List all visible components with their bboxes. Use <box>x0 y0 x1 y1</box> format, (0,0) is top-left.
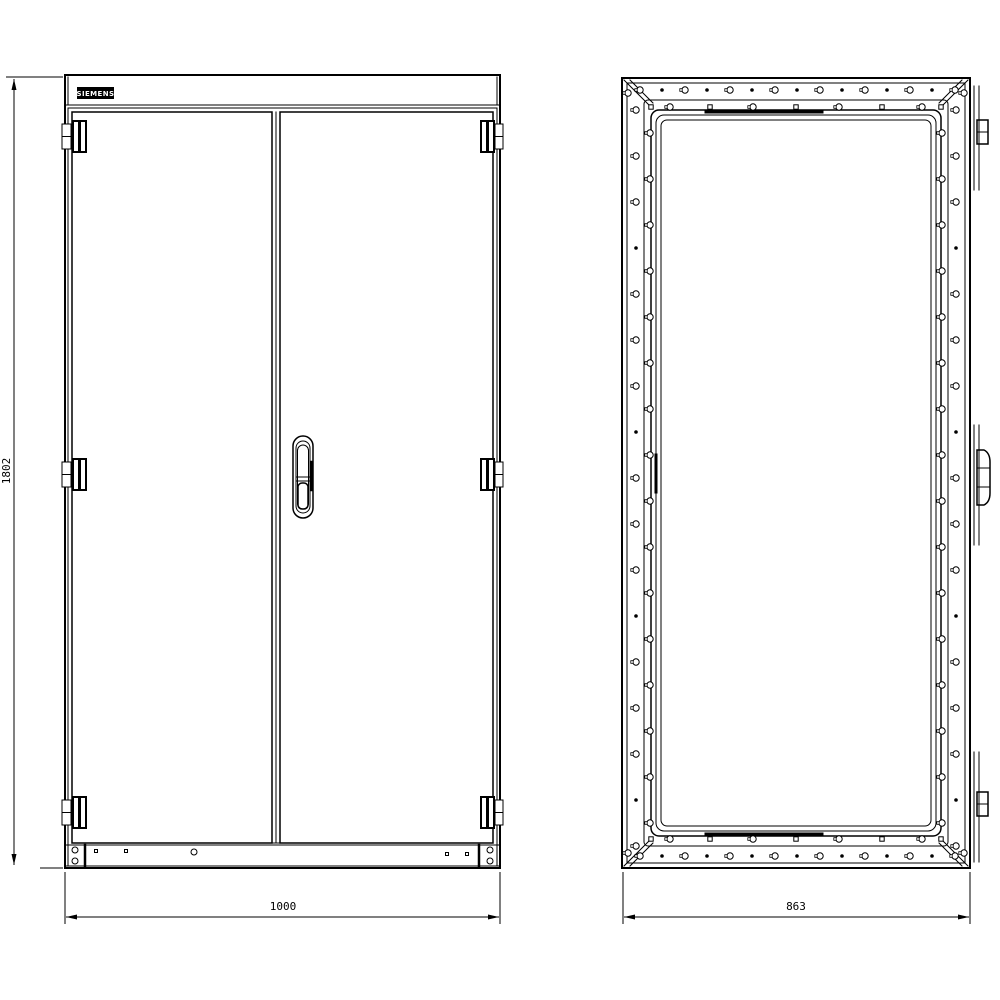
hinge-left-top <box>62 121 86 152</box>
hinge-right-top <box>481 121 503 152</box>
hinge-right-bottom <box>481 797 503 828</box>
height-dimension-label: 1802 <box>0 458 13 485</box>
hinge-right-middle <box>481 459 503 490</box>
siemens-logo-text: SIEMENS <box>77 90 115 98</box>
enclosure-technical-drawing: SIEMENS <box>0 0 1000 1000</box>
hinge-left-bottom <box>62 797 86 828</box>
hinge-left-middle <box>62 459 86 490</box>
depth-dimension-label: 863 <box>786 900 806 913</box>
siemens-logo: SIEMENS <box>77 87 115 99</box>
width-dimension-label: 1000 <box>270 900 297 913</box>
